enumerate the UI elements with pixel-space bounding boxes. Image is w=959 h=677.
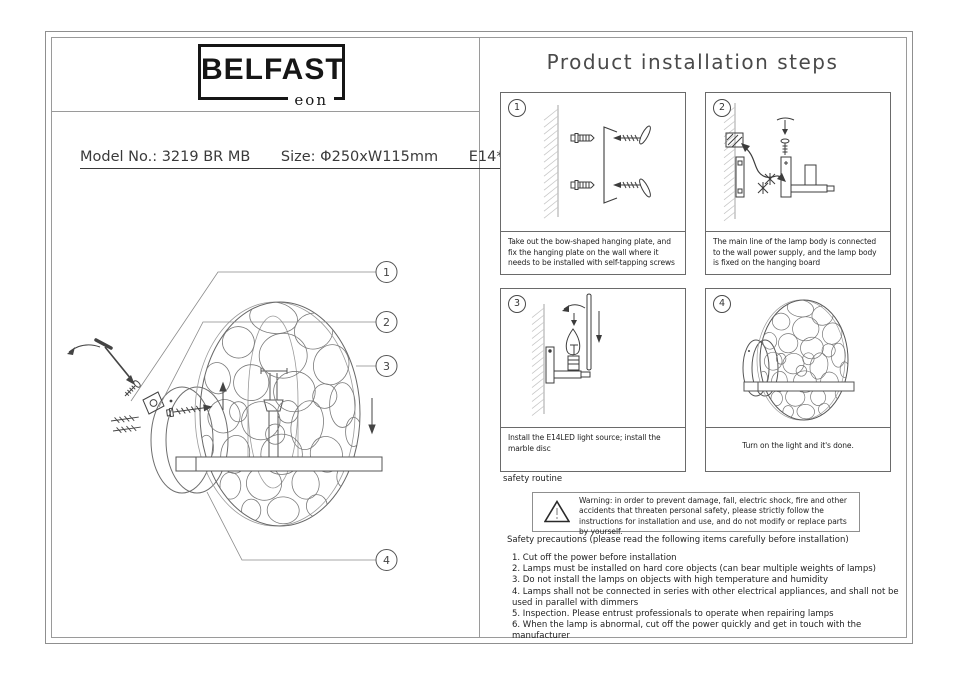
svg-text:1: 1 bbox=[383, 266, 390, 279]
precautions-title: Safety precautions (please read the foll… bbox=[507, 535, 849, 545]
step-1-caption: Take out the bow-shaped hanging plate, a… bbox=[501, 231, 685, 274]
callout-badges: 1 2 3 4 bbox=[376, 262, 397, 571]
precaution-item: 5. Inspection. Please entrust profession… bbox=[512, 609, 912, 620]
anchor-screws-icon bbox=[571, 134, 594, 190]
screwdriver-and-screw-icon bbox=[777, 118, 794, 155]
wall-hatch bbox=[544, 109, 558, 218]
lamp-body bbox=[781, 157, 834, 197]
brand-logo: BELFAST eon bbox=[198, 44, 345, 100]
step-4-illustration bbox=[706, 289, 888, 426]
header-separator bbox=[52, 111, 479, 112]
down-arrow bbox=[369, 398, 375, 433]
precaution-item: 6. When the lamp is abnormal, cut off th… bbox=[512, 620, 912, 642]
marble-disc bbox=[195, 299, 362, 526]
page-title: Product installation steps bbox=[479, 50, 906, 74]
panel-divider bbox=[479, 37, 480, 637]
step-1-box: 1 Take out the bow-shaped hanging plate,… bbox=[500, 92, 686, 275]
precaution-item: 3. Do not install the lamps on objects w… bbox=[512, 575, 912, 586]
safety-routine-label: safety routine bbox=[503, 474, 562, 484]
self-tapping-screws-icon bbox=[613, 125, 652, 198]
power-wire bbox=[741, 143, 786, 182]
warning-text: Warning: in order to prevent damage, fal… bbox=[579, 496, 855, 538]
step-3-box: 3 Install the E14LED light source; insta… bbox=[500, 288, 686, 472]
wire-connectors bbox=[758, 173, 775, 194]
step-number-badge: 3 bbox=[508, 295, 526, 313]
step-4-caption: Turn on the light and it's done. bbox=[706, 427, 890, 471]
step-1-illustration bbox=[501, 93, 683, 230]
warning-triangle-icon bbox=[544, 500, 570, 523]
marble-disc-edge bbox=[587, 294, 591, 370]
precaution-item: 4. Lamps shall not be connected in serie… bbox=[512, 587, 912, 609]
anchor-plugs-icon bbox=[111, 414, 142, 434]
svg-text:4: 4 bbox=[383, 554, 390, 567]
wall-hatch bbox=[532, 308, 544, 416]
brand-name: BELFAST bbox=[201, 53, 342, 87]
step-3-caption: Install the E14LED light source; install… bbox=[501, 427, 685, 471]
model-number: Model No.: 3219 BR MB bbox=[80, 149, 250, 165]
brand-subname: eon bbox=[288, 91, 334, 109]
shelf-bar bbox=[176, 457, 382, 471]
wall-plate bbox=[546, 347, 554, 383]
precaution-item: 1. Cut off the power before installation bbox=[512, 553, 912, 564]
screwdriver-icon bbox=[67, 340, 135, 385]
marble-disc bbox=[757, 298, 849, 420]
exploded-view-drawing: 1 2 3 4 bbox=[55, 240, 415, 600]
precautions-list: 1. Cut off the power before installation… bbox=[512, 553, 912, 643]
size-spec: Size: Φ250xW115mm bbox=[281, 149, 438, 165]
step-2-caption: The main line of the lamp body is connec… bbox=[706, 231, 890, 274]
wall-bracket bbox=[736, 157, 744, 197]
step-2-illustration bbox=[706, 93, 888, 230]
bulb-holder bbox=[261, 368, 287, 457]
svg-text:2: 2 bbox=[383, 316, 390, 329]
wall-hatch bbox=[724, 107, 735, 221]
shelf-bar bbox=[744, 382, 854, 391]
step-4-box: 4 Turn on the light and it's done. bbox=[705, 288, 891, 472]
rotate-arrow bbox=[562, 305, 585, 326]
step-number-badge: 1 bbox=[508, 99, 526, 117]
step-3-illustration bbox=[501, 289, 683, 426]
down-arrow bbox=[596, 311, 602, 343]
step-2-box: 2 The main line of the lamp body is conn… bbox=[705, 92, 891, 275]
model-spec: Model No.: 3219 BR MB Size: Φ250xW115mm … bbox=[80, 149, 513, 169]
precaution-item: 2. Lamps must be installed on hard core … bbox=[512, 564, 912, 575]
step-number-badge: 4 bbox=[713, 295, 731, 313]
lamp-arm bbox=[554, 371, 590, 378]
step-number-badge: 2 bbox=[713, 99, 731, 117]
warning-box: Warning: in order to prevent damage, fal… bbox=[532, 492, 860, 532]
svg-text:3: 3 bbox=[383, 360, 390, 373]
candle-bulb bbox=[566, 329, 580, 370]
